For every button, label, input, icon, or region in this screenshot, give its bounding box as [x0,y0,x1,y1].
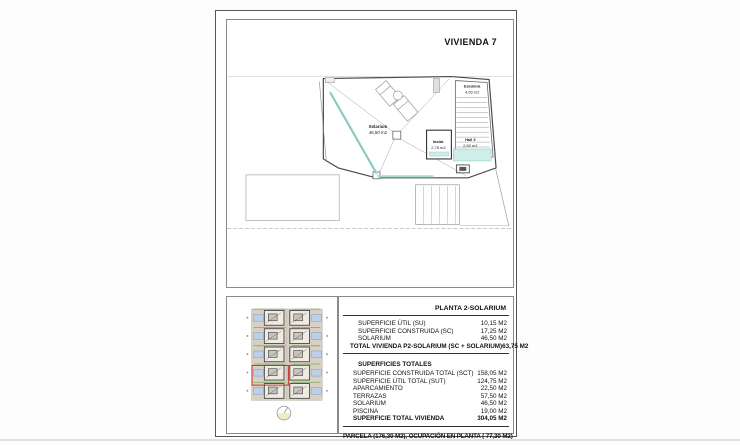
unit-detail [294,314,303,321]
site-tick [326,317,328,319]
instal-area: 2,75 m2 [431,145,445,150]
table-row: APARCAMIENTO22,50 M2 [343,385,509,393]
unit-detail [294,369,303,376]
instal-label: Instal. [433,139,444,144]
escalera-label: Escalera [464,83,481,88]
row-value: 46,50 M2 [481,400,509,408]
side-table [393,91,402,100]
site-tick [326,335,328,337]
row-label: PISCINA [343,408,378,416]
table-row: SOLARIUM46,50 M2 [343,335,509,343]
row-label: APARCAMIENTO [343,385,403,393]
unit-detail [294,332,303,339]
unit-pool [254,369,264,376]
site-tick [326,390,328,392]
row-label: SOLARIUM [343,400,386,408]
window-bottom-edge [0,439,740,441]
top-left-vent [325,78,334,83]
row-value: 19,00 M2 [481,408,509,416]
row-label: SOLARIUM [343,335,391,343]
divider [343,426,509,427]
right-wall-line [494,162,509,227]
solarium-area: 46,50 m2 [369,130,388,135]
unit-pool [254,314,264,321]
site-tick [247,390,249,392]
escalera-area: 4,50 m2 [465,89,479,94]
row-label: SUPERFICIE ÚTIL (SU) [343,320,426,328]
site-tick [247,335,249,337]
row-value: 124,75 M2 [477,378,509,386]
unit-pool [311,387,321,394]
unit-pool [311,351,321,358]
table-row: SUPERFICIE TOTAL VIVIENDA304,05 M2 [343,415,509,423]
unit-pool [311,333,321,340]
unit-detail [268,369,277,376]
table-row: TOTAL VIVIENDA P2-SOLARIUM (SC + SOLARIU… [343,343,509,351]
divider [343,315,509,316]
divider [343,353,509,354]
document-page: VIVIENDA 7 [215,10,517,437]
screenshot-root: VIVIENDA 7 [0,0,740,445]
row-value: 158,05 M2 [477,370,509,378]
planta-rows: SUPERFICIE ÚTIL (SU)10,15 M2SUPERFICIE C… [343,320,509,350]
unit-pool [311,369,321,376]
row-label: SUPERFICIE ÚTIL TOTAL (SUT) [343,378,446,386]
table-header: PLANTA 2-SOLARIUM [343,305,509,312]
pergola-hatch [416,185,460,225]
site-tick [247,372,249,374]
solarium-label: Solarium [369,124,388,129]
hall-floor [453,149,491,161]
row-value: 17,25 M2 [481,328,509,336]
floor-plan-drawing: Escalera 4,50 m2 Instal. 2,75 m2 Hall 3 … [227,20,513,287]
lower-terrace-outline [246,175,339,221]
row-label: SUPERFICIE CONSTRUIDA TOTAL (SCT) [343,370,473,378]
site-tick [326,353,328,355]
table-row: SUPERFICIE ÚTIL TOTAL (SUT)124,75 M2 [343,378,509,386]
totals-rows: SUPERFICIE CONSTRUIDA TOTAL (SCT)158,05 … [343,370,509,423]
compass-icon [277,406,291,420]
unit-pool [311,314,321,321]
table-row: SOLARIUM46,50 M2 [343,400,509,408]
chimney [434,79,440,93]
site-tick [326,372,328,374]
unit-pool [254,387,264,394]
row-value: 22,50 M2 [481,385,509,393]
row-label: TERRAZAS [343,393,387,401]
row-label: TOTAL VIVIENDA P2-SOLARIUM (SC + SOLARIU… [343,343,502,351]
instal-teal-strip [430,152,449,156]
site-plan-panel [226,296,338,434]
unit-detail [294,387,303,394]
row-value: 10,15 M2 [481,320,509,328]
unit-detail [268,350,277,357]
unit-detail [294,350,303,357]
row-label: SUPERFICIE TOTAL VIVIENDA [343,415,444,423]
table-row: PISCINA19,00 M2 [343,408,509,416]
center-node [393,131,401,139]
row-value: 46,50 M2 [481,335,509,343]
unit-pool [254,333,264,340]
row-value: 63,75 M2 [502,343,530,351]
table-row: SUPERFICIE ÚTIL (SU)10,15 M2 [343,320,509,328]
row-value: 304,05 M2 [477,415,509,423]
unit-detail [268,314,277,321]
site-plan-drawing [227,297,337,433]
table-row: SUPERFICIE CONSTRUIDA TOTAL (SCT)158,05 … [343,370,509,378]
table-row: TERRAZAS57,50 M2 [343,393,509,401]
unit-detail [268,387,277,394]
table-row: SUPERFICIE CONSTRUIDA (SC)17,25 M2 [343,328,509,336]
summary-panel: PLANTA 2-SOLARIUM SUPERFICIE ÚTIL (SU)10… [338,296,514,434]
row-value: 57,50 M2 [481,393,509,401]
hall-label: Hall 3 [465,137,476,142]
totals-title: SUPERFICIES TOTALES [343,361,509,369]
site-tick [247,353,249,355]
unit-detail [268,332,277,339]
hall-area: 2,50 m2 [463,143,477,148]
row-label: SUPERFICIE CONSTRUIDA (SC) [343,328,454,336]
site-tick [247,317,249,319]
unit-pool [254,351,264,358]
floor-plan-panel: VIVIENDA 7 [226,19,514,288]
